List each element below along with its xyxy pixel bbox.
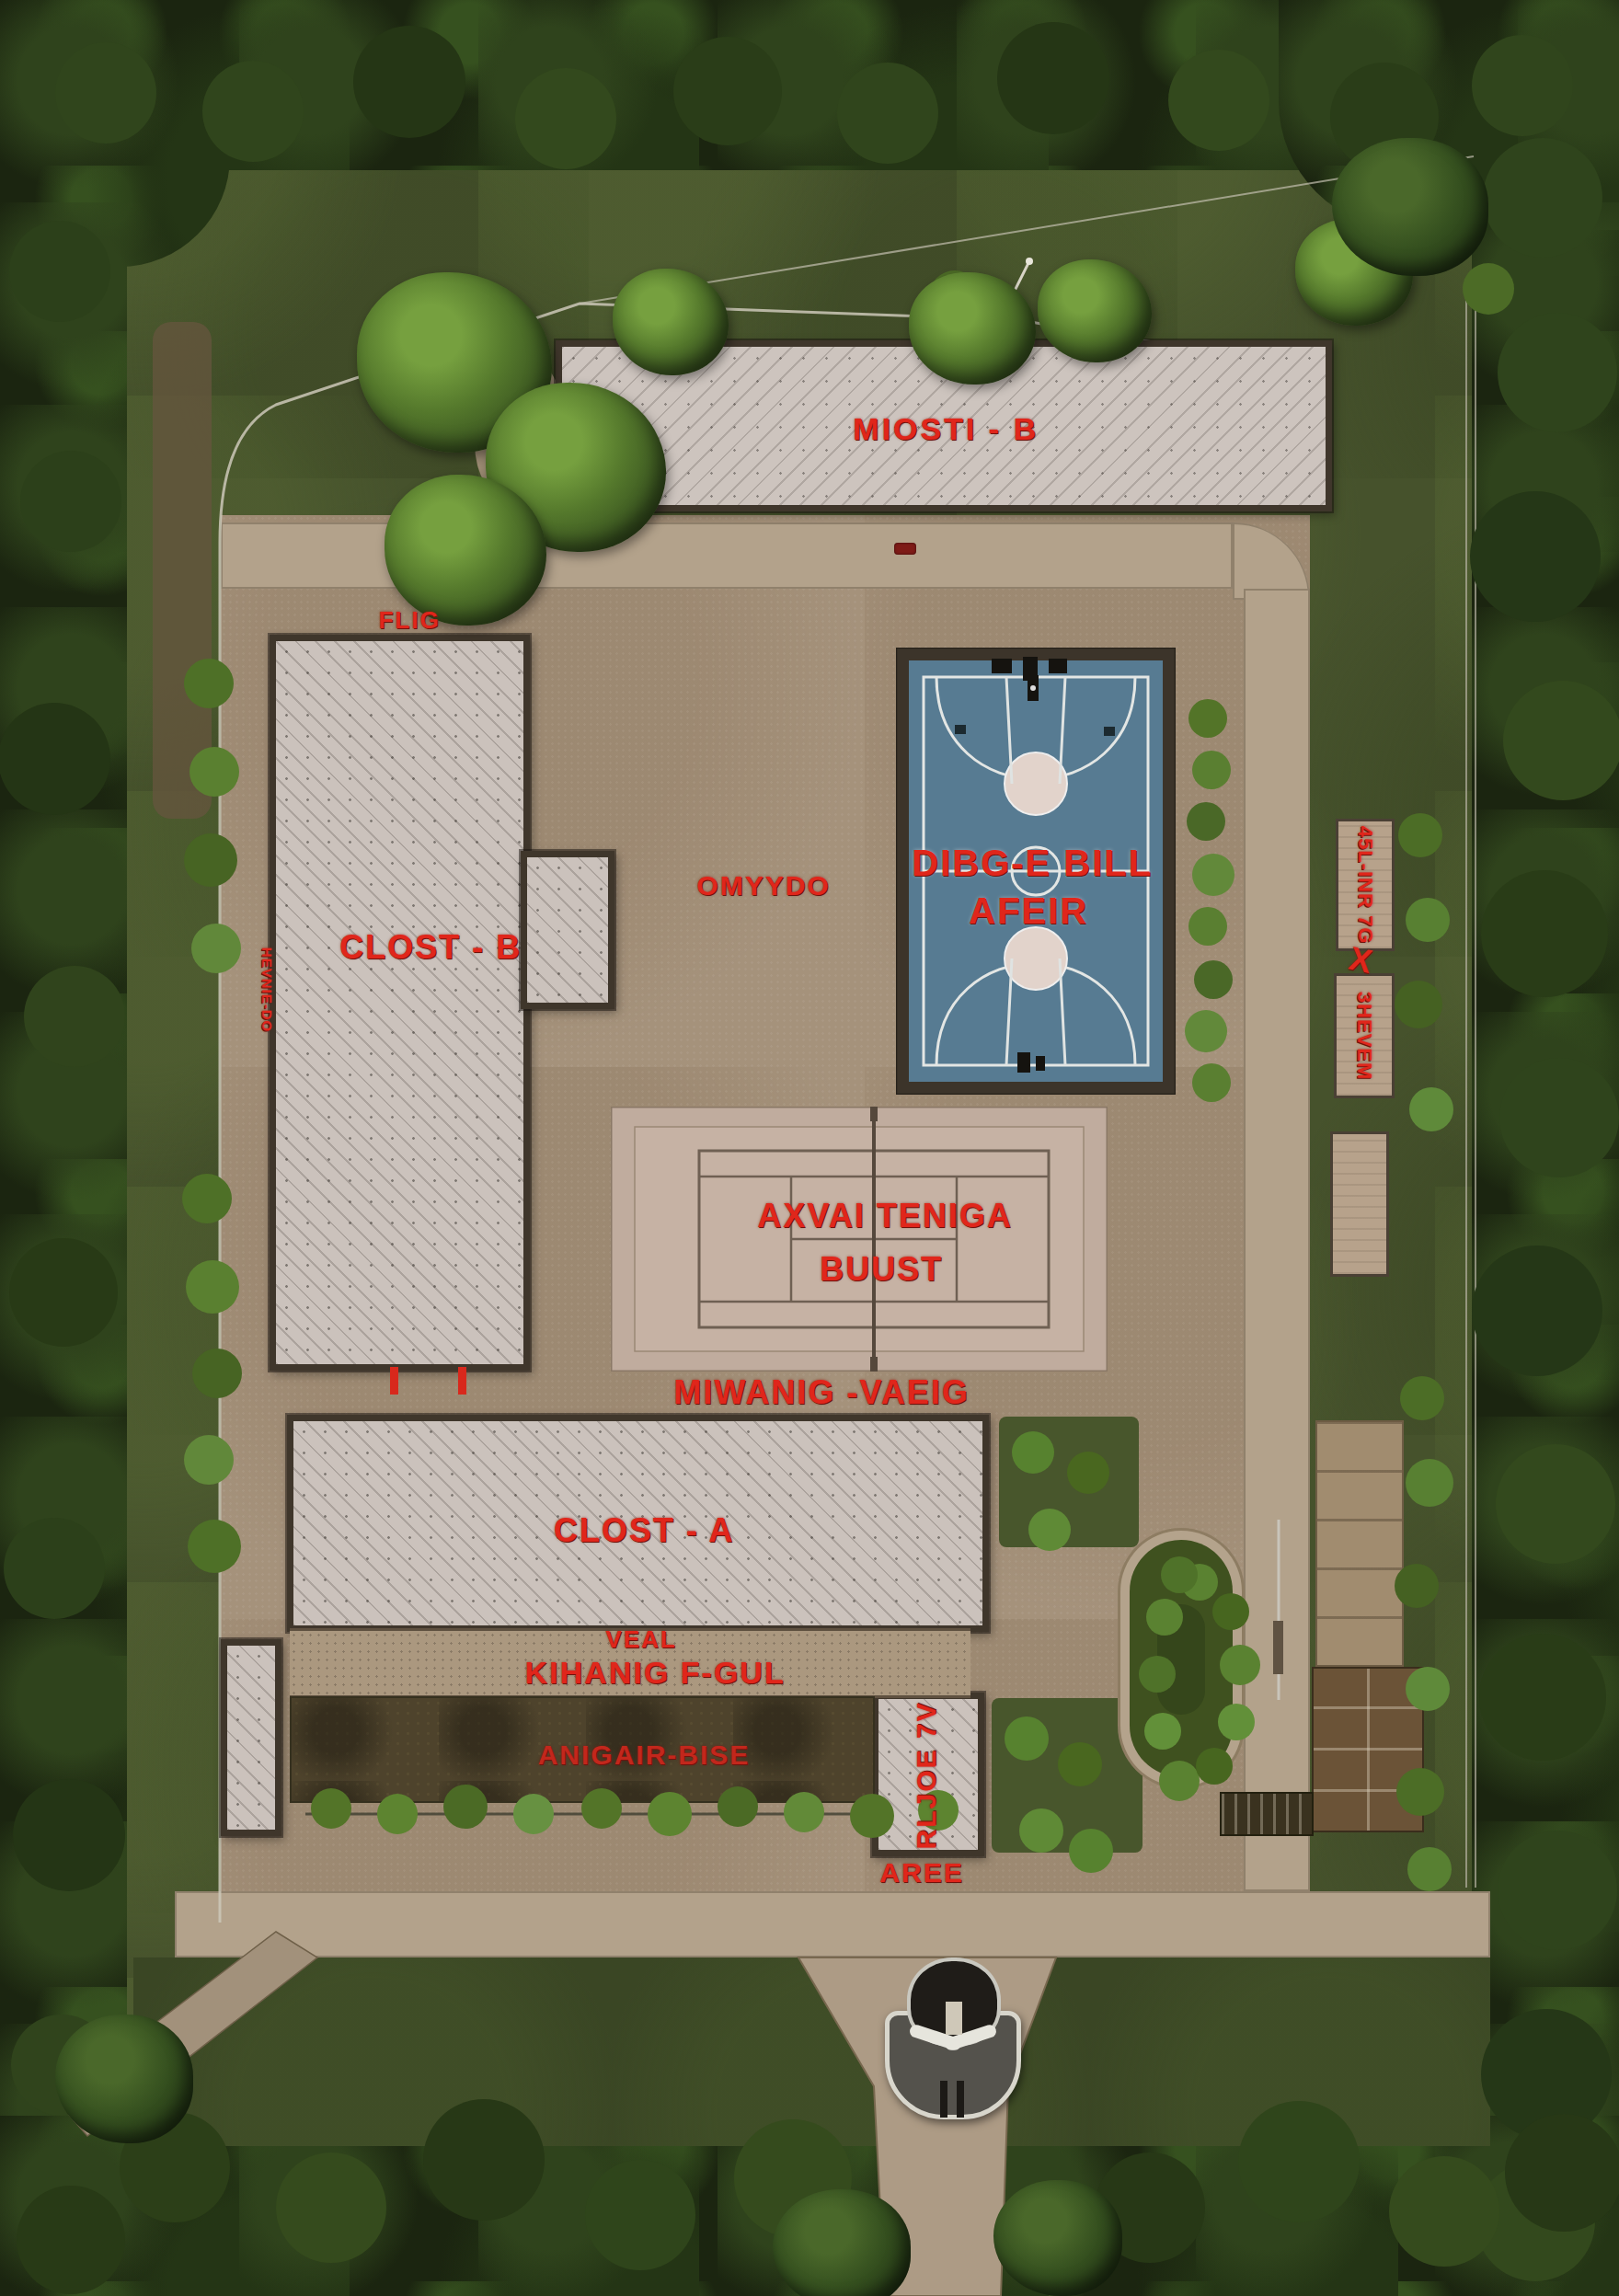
label-tennis-line1: AXVAI TENIGA — [757, 1197, 1012, 1235]
building-left-annex — [221, 1639, 281, 1836]
steps-pad — [1220, 1792, 1314, 1836]
booth-vent — [940, 2081, 947, 2118]
label-veal: VEAL — [605, 1625, 676, 1654]
tree — [773, 2189, 911, 2296]
building-clost-b — [270, 635, 530, 1371]
bush-row-garden — [311, 1788, 351, 1829]
label-kihanig: KIHANIG F-GUL — [525, 1655, 786, 1691]
label-tennis-line2: BUUST — [820, 1250, 943, 1289]
label-court-line1: DIBG-E BILL — [912, 843, 1153, 884]
booth-vent — [957, 2081, 964, 2118]
label-court-line2: AFEIR — [969, 890, 1088, 932]
bush-row-right-inner — [1398, 813, 1442, 857]
label-omyydo: OMYYDO — [696, 870, 830, 901]
label-miwanig: MIWANIG -VAEIG — [673, 1373, 969, 1412]
sidewalk-pad — [1315, 1420, 1404, 1667]
label-anigair: ANIGAIR-BISE — [538, 1739, 751, 1771]
tree — [1332, 138, 1488, 276]
label-sign-right-top: 45L-INR 7G — [1353, 826, 1377, 945]
tree-column-right — [1483, 138, 1602, 258]
label-flig: FLIG — [378, 606, 440, 635]
bush-cluster-southeast — [1005, 1716, 1049, 1761]
label-building-miosti-b: MIOSTI - B — [853, 411, 1039, 447]
building-clost-b-wing — [521, 851, 614, 1009]
label-sign-right-bottom: 3HEVEM — [1352, 992, 1376, 1080]
tree-row-top — [55, 42, 156, 143]
tree — [55, 2015, 193, 2143]
car — [894, 543, 916, 555]
parking-pad — [1312, 1667, 1424, 1832]
tennis-court — [611, 1107, 1108, 1372]
aerial-site-plan: MIOSTI - B FLIG CLOST - B OMYYDO DIBG-E … — [0, 0, 1619, 2296]
label-clost-a: CLOST - A — [554, 1511, 735, 1550]
red-tick-marker — [458, 1367, 466, 1395]
tree — [993, 2180, 1122, 2296]
label-rljoe: RLJOE 7V — [911, 1701, 942, 1849]
bush-cluster-east — [1012, 1431, 1054, 1474]
label-left-edge-vertical: HEVNIE-DO — [259, 947, 275, 1032]
label-clost-b: CLOST - B — [339, 928, 522, 967]
bush-row-left-fence — [184, 659, 234, 708]
hedge-row-court — [1188, 699, 1227, 738]
tree-column-left — [9, 221, 110, 322]
bush-ring-oval — [1161, 1556, 1198, 1593]
red-tick-marker — [390, 1367, 398, 1395]
pad-blank — [1330, 1131, 1389, 1277]
booth-paper — [946, 2002, 962, 2035]
oval-island-center — [1157, 1604, 1205, 1715]
label-aree: AREE — [879, 1857, 963, 1888]
